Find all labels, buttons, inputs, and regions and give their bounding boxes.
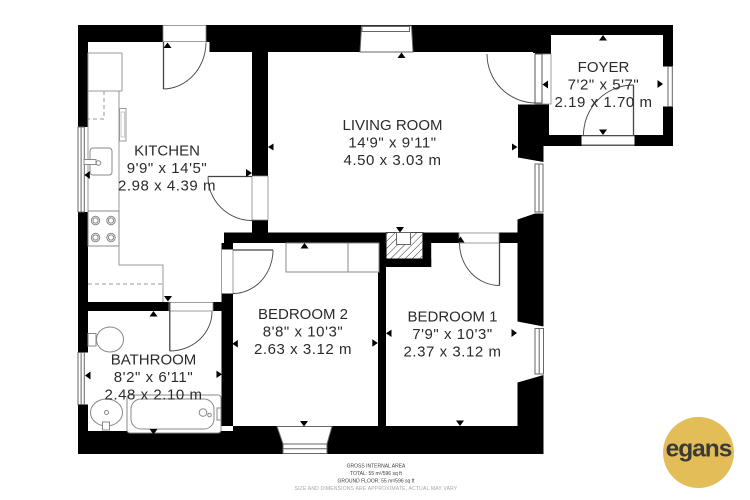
- svg-text:BEDROOM 1: BEDROOM 1: [407, 309, 497, 326]
- svg-text:14'9" x 9'11": 14'9" x 9'11": [348, 135, 436, 152]
- svg-text:SIZE AND DIMENSIONS ARE APPROX: SIZE AND DIMENSIONS ARE APPROXIMATE, ACT…: [295, 486, 458, 492]
- svg-text:2.63 x 3.12 m: 2.63 x 3.12 m: [254, 341, 352, 358]
- svg-text:4.50 x 3.03 m: 4.50 x 3.03 m: [343, 152, 441, 169]
- svg-text:2.48 x 2.10 m: 2.48 x 2.10 m: [104, 387, 202, 404]
- svg-text:8'2" x 6'11": 8'2" x 6'11": [114, 369, 193, 386]
- svg-text:GROUND FLOOR: 55 m²/596 sq ft: GROUND FLOOR: 55 m²/596 sq ft: [338, 479, 416, 485]
- svg-text:GROSS INTERNAL AREA: GROSS INTERNAL AREA: [347, 464, 406, 470]
- svg-text:egans: egans: [666, 436, 732, 463]
- svg-text:8'8" x 10'3": 8'8" x 10'3": [263, 324, 344, 341]
- svg-text:KITCHEN: KITCHEN: [134, 143, 200, 160]
- svg-text:9'9" x 14'5": 9'9" x 14'5": [127, 160, 208, 177]
- svg-text:FOYER: FOYER: [578, 59, 630, 76]
- svg-text:2.37 x 3.12 m: 2.37 x 3.12 m: [403, 344, 501, 361]
- svg-text:2.98 x 4.39 m: 2.98 x 4.39 m: [118, 178, 216, 195]
- svg-text:2.19 x 1.70 m: 2.19 x 1.70 m: [554, 94, 652, 111]
- svg-text:BEDROOM 2: BEDROOM 2: [258, 306, 348, 323]
- svg-text:LIVING ROOM: LIVING ROOM: [342, 117, 442, 134]
- svg-text:7'2" x 5'7": 7'2" x 5'7": [568, 77, 640, 94]
- svg-text:TOTAL: 55 m²/596 sq ft: TOTAL: 55 m²/596 sq ft: [350, 471, 402, 477]
- svg-text:7'9" x 10'3": 7'9" x 10'3": [412, 326, 493, 343]
- svg-text:BATHROOM: BATHROOM: [111, 352, 197, 369]
